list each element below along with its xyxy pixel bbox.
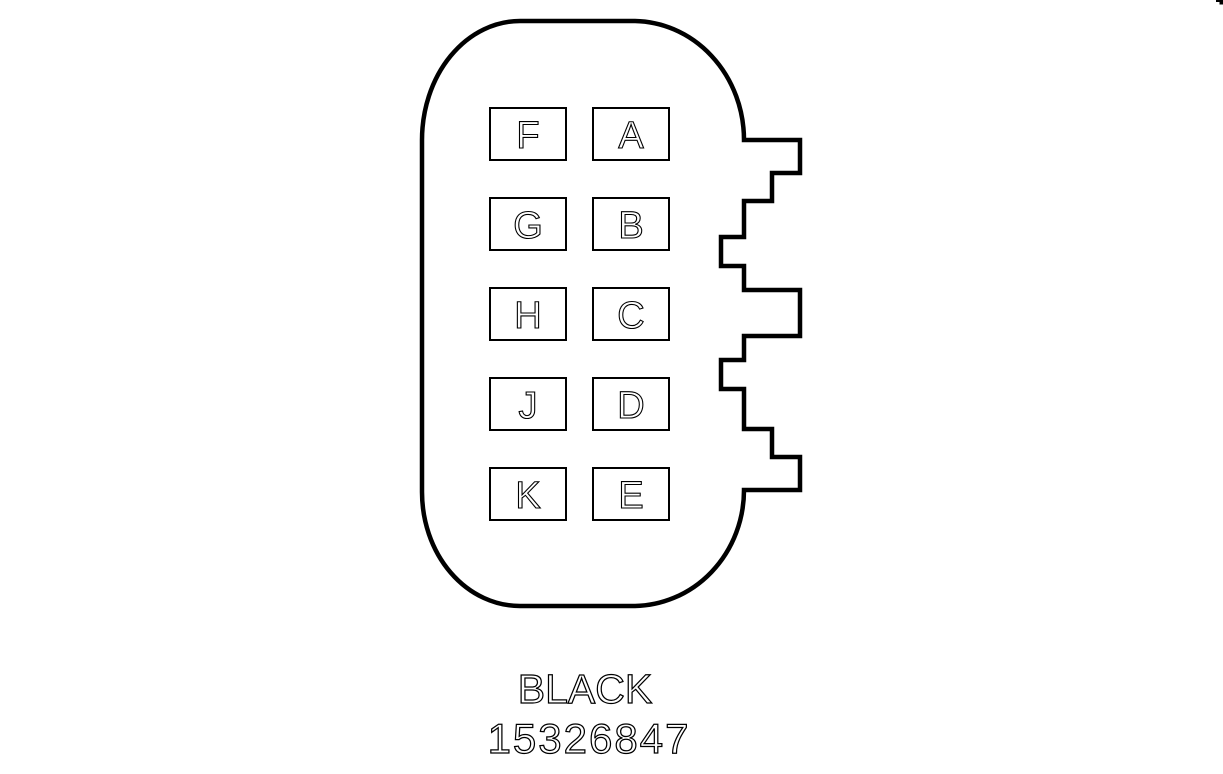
color-label: BLACK <box>518 666 652 712</box>
connector-diagram-svg: F A G B H C J D K E BLACK <box>0 0 1223 774</box>
pin-label-c: C <box>617 295 644 337</box>
edge-artifact <box>1216 0 1223 5</box>
pin-label-j: J <box>519 385 538 427</box>
pin-label-b: B <box>618 205 643 247</box>
caption: BLACK 15326847 <box>488 666 691 762</box>
pin-label-k: K <box>515 475 540 517</box>
pin-label-g: G <box>513 205 543 247</box>
pin-label-d: D <box>617 385 644 427</box>
pin-label-h: H <box>514 295 541 337</box>
part-number-label: 15326847 <box>488 715 691 762</box>
pin-label-e: E <box>618 475 643 517</box>
pin-label-f: F <box>516 115 539 157</box>
drawing-canvas: F A G B H C J D K E BLACK <box>0 0 1223 774</box>
pin-label-a: A <box>618 115 644 157</box>
